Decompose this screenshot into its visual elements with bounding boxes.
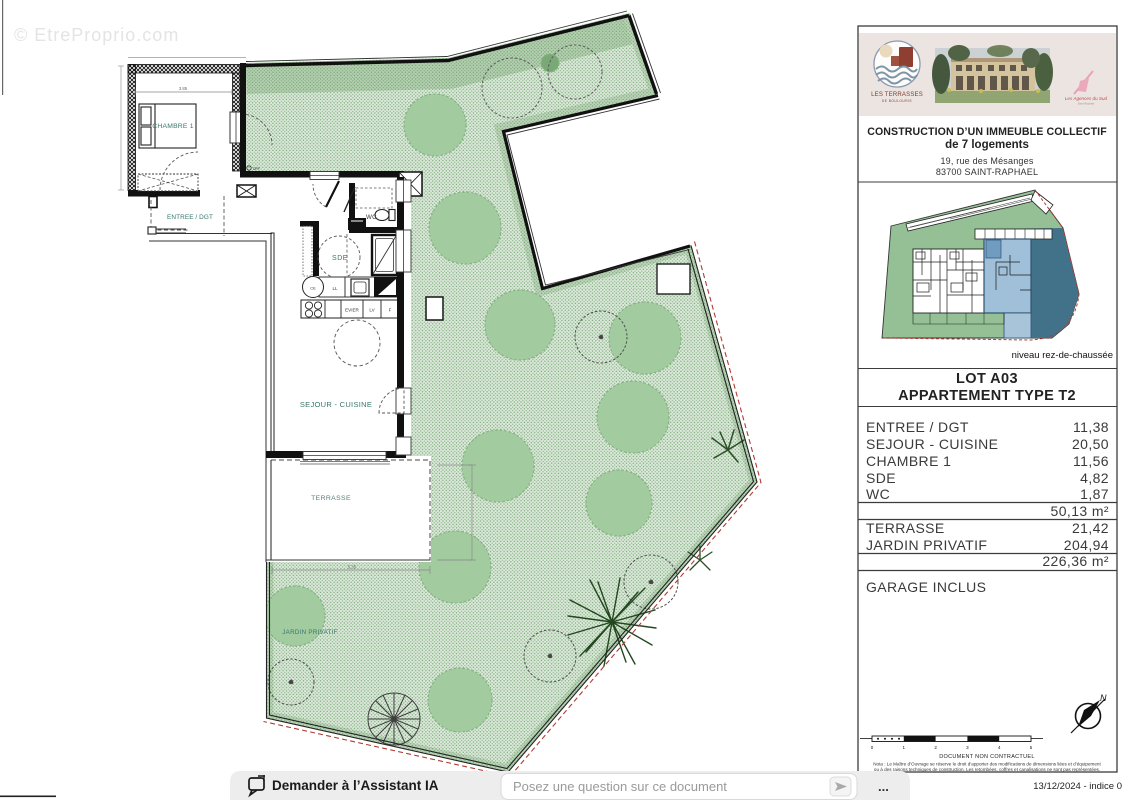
svg-text:TERRASSE: TERRASSE <box>311 495 351 502</box>
svg-text:de 7 logements: de 7 logements <box>945 139 1029 151</box>
svg-text:EVIER: EVIER <box>345 308 359 313</box>
svg-text:21,42: 21,42 <box>1072 520 1109 536</box>
svg-text:...: ... <box>878 779 889 794</box>
svg-text:Nota : Le Maître d’Ouvrage se: Nota : Le Maître d’Ouvrage se réserve le… <box>873 762 1101 767</box>
svg-text:5.35: 5.35 <box>348 565 357 570</box>
svg-text:83700 SAINT-RAPHAEL: 83700 SAINT-RAPHAEL <box>936 167 1038 177</box>
svg-text:DPF: DPF <box>253 167 260 171</box>
svg-text:CONSTRUCTION D’UN IMMEUBLE COL: CONSTRUCTION D’UN IMMEUBLE COLLECTIF <box>867 126 1107 138</box>
svg-text:11,38: 11,38 <box>1073 419 1109 435</box>
svg-text:JARDIN PRIVATIF: JARDIN PRIVATIF <box>866 537 987 553</box>
svg-text:ENTREE / DGT: ENTREE / DGT <box>866 419 969 435</box>
svg-text:Saint-Raphael: Saint-Raphael <box>1078 102 1095 106</box>
svg-text:13/12/2024 - indice 0: 13/12/2024 - indice 0 <box>1033 781 1122 792</box>
svg-text:SDE: SDE <box>332 255 348 262</box>
svg-text:SEJOUR - CUISINE: SEJOUR - CUISINE <box>300 400 372 409</box>
svg-text:ENTREE / DGT: ENTREE / DGT <box>167 214 213 221</box>
svg-text:4,82: 4,82 <box>1080 470 1109 486</box>
svg-text:LES TERRASSES: LES TERRASSES <box>871 92 923 98</box>
svg-text:N: N <box>1100 693 1107 703</box>
svg-text:1,87: 1,87 <box>1080 486 1109 502</box>
svg-text:SEJOUR - CUISINE: SEJOUR - CUISINE <box>866 436 998 452</box>
svg-text:GARAGE INCLUS: GARAGE INCLUS <box>866 579 986 595</box>
svg-text:Demander à l’Assistant IA: Demander à l’Assistant IA <box>272 778 439 793</box>
svg-text:50,13 m²: 50,13 m² <box>1051 503 1109 519</box>
svg-text:TERRASSE: TERRASSE <box>866 520 945 536</box>
svg-text:19, rue des Mésanges: 19, rue des Mésanges <box>940 156 1033 166</box>
svg-text:LL: LL <box>332 286 338 291</box>
svg-text:CE: CE <box>310 286 316 291</box>
svg-text:204,94: 204,94 <box>1064 537 1109 553</box>
svg-text:3.85: 3.85 <box>179 86 188 91</box>
svg-text:© EtreProprio.com: © EtreProprio.com <box>14 25 179 45</box>
svg-text:LOT A03: LOT A03 <box>956 371 1018 387</box>
svg-text:Posez une question sur ce docu: Posez une question sur ce document <box>513 779 727 794</box>
svg-text:ou à des raisons techniques de: ou à des raisons techniques de construct… <box>874 767 1100 772</box>
svg-text:Les Agences du Sud: Les Agences du Sud <box>1065 96 1108 101</box>
svg-text:niveau rez-de-chaussée: niveau rez-de-chaussée <box>1012 350 1113 361</box>
svg-text:11,56: 11,56 <box>1073 453 1109 469</box>
svg-text:CHAMBRE 1: CHAMBRE 1 <box>866 453 951 469</box>
svg-text:CHAMBRE 1: CHAMBRE 1 <box>152 123 193 130</box>
svg-text:WC: WC <box>866 486 890 502</box>
svg-text:SDE: SDE <box>866 470 896 486</box>
svg-text:20,50: 20,50 <box>1072 436 1109 452</box>
svg-text:DE BOULOURIS: DE BOULOURIS <box>882 99 912 103</box>
svg-text:226,36 m²: 226,36 m² <box>1042 553 1109 569</box>
svg-text:DOCUMENT NON CONTRACTUEL: DOCUMENT NON CONTRACTUEL <box>939 754 1034 760</box>
svg-text:APPARTEMENT TYPE T2: APPARTEMENT TYPE T2 <box>898 388 1076 404</box>
svg-text:JARDIN PRIVATIF: JARDIN PRIVATIF <box>282 629 338 636</box>
svg-text:WC: WC <box>366 214 377 221</box>
svg-text:F: F <box>389 308 392 313</box>
